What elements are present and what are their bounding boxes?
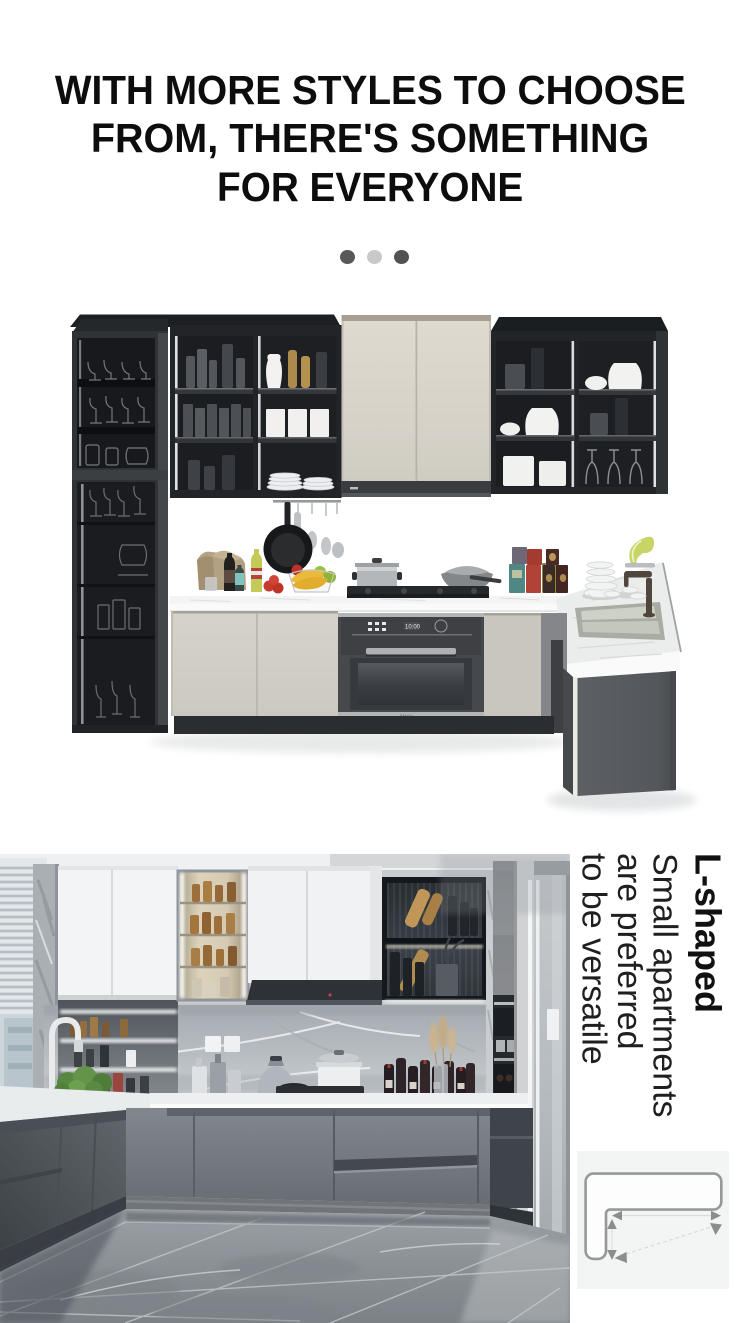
svg-text:10:00: 10:00 bbox=[405, 625, 421, 631]
